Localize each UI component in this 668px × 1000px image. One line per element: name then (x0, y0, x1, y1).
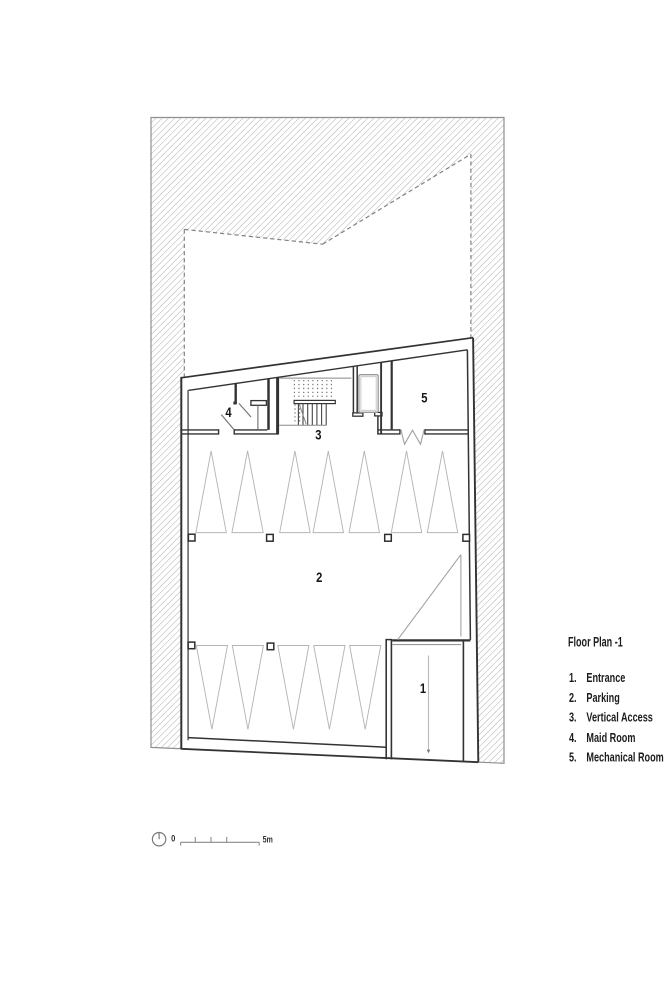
svg-text:5.: 5. (569, 751, 577, 765)
svg-text:0: 0 (171, 832, 175, 843)
svg-text:2.: 2. (569, 692, 577, 706)
svg-text:Entrance: Entrance (586, 671, 625, 685)
svg-text:1: 1 (420, 681, 426, 696)
svg-text:Vertical Access: Vertical Access (586, 711, 652, 725)
svg-text:2: 2 (316, 570, 322, 585)
svg-text:3.: 3. (569, 711, 577, 725)
svg-text:Floor Plan -1: Floor Plan -1 (568, 636, 623, 650)
svg-text:1.: 1. (569, 671, 577, 685)
svg-text:5m: 5m (263, 833, 273, 844)
svg-text:5: 5 (421, 390, 427, 405)
svg-text:4: 4 (225, 405, 231, 420)
svg-text:3: 3 (315, 427, 321, 442)
svg-text:Mechanical Room: Mechanical Room (586, 751, 663, 765)
svg-text:Parking: Parking (586, 692, 619, 706)
svg-text:4.: 4. (569, 731, 577, 745)
svg-text:Maid Room: Maid Room (586, 731, 635, 745)
